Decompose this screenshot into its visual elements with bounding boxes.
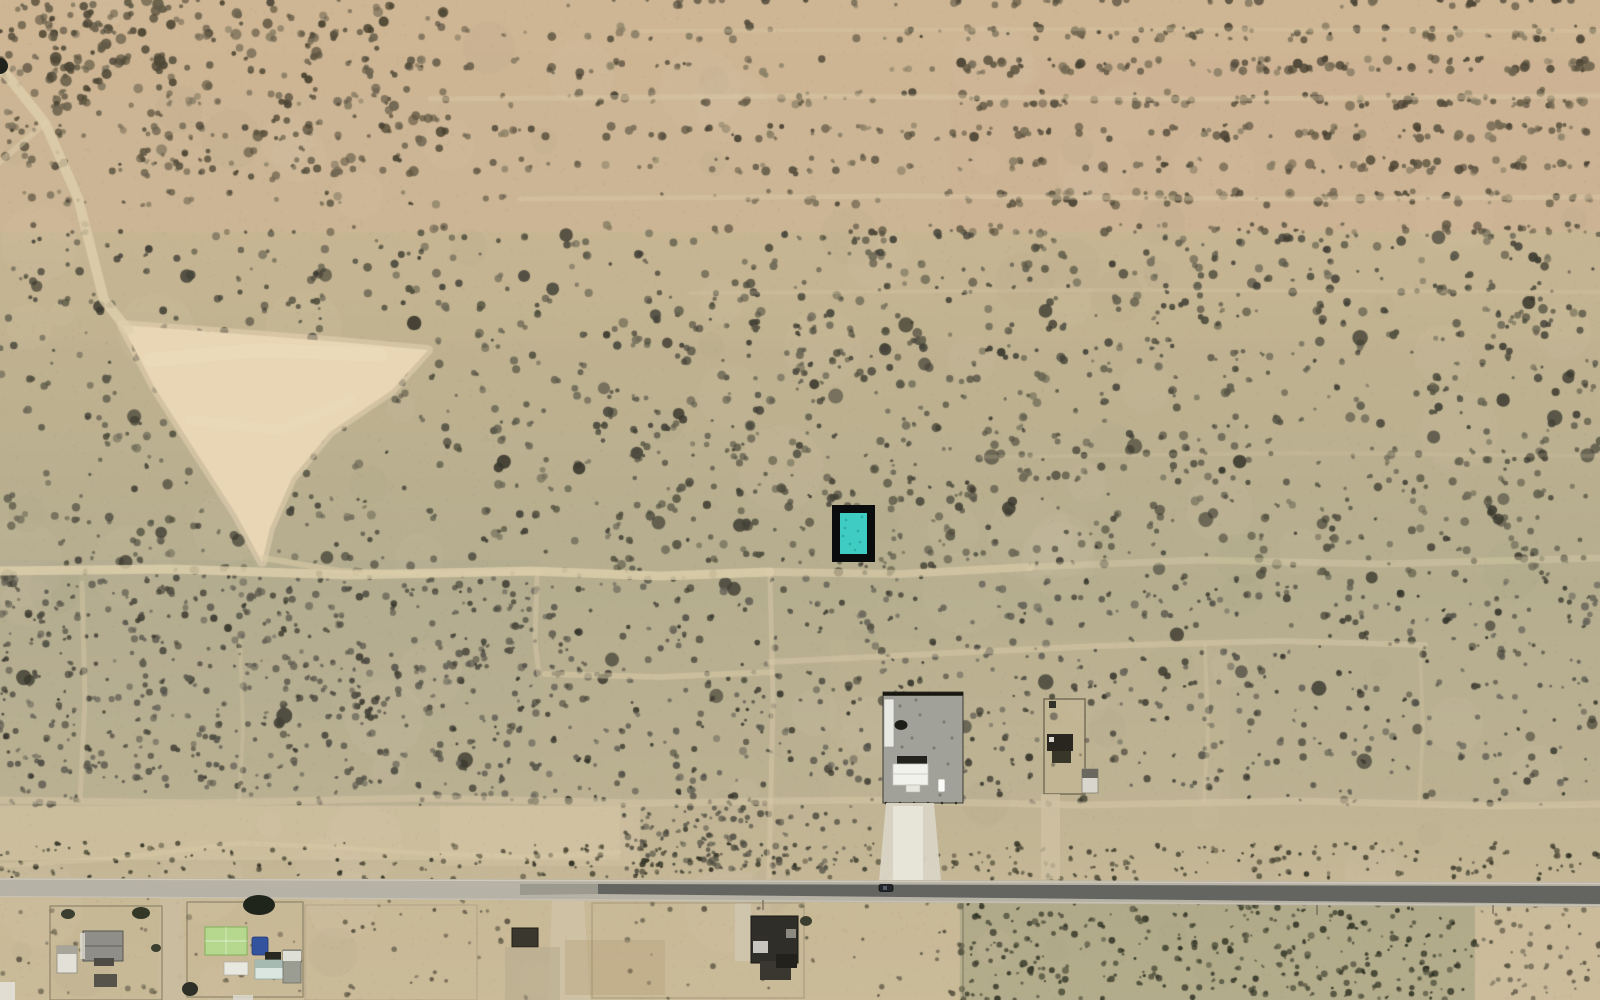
property-3-garage-dark (776, 954, 797, 968)
dirt-area (565, 940, 665, 995)
p3-driveway (735, 903, 751, 961)
lot-a-white-vehicle (938, 779, 945, 792)
property-2-white-shed (224, 962, 248, 975)
property-1-tree-1 (61, 909, 75, 919)
lot-a-house-steps (906, 785, 920, 792)
lot-b-shed-north (1049, 701, 1056, 708)
lot-b-house-main (1047, 734, 1073, 751)
bottom-white-strip (233, 995, 253, 1000)
property-1-house-eave (80, 933, 85, 959)
lot-b-white-shed-roof (1082, 769, 1098, 778)
lot-b-house-wing (1052, 751, 1071, 763)
property-1-porch (94, 958, 114, 966)
property-2-teal-house-roof (255, 960, 284, 968)
lot-b-driveway (1041, 794, 1060, 879)
road-asphalt-transition (520, 884, 598, 895)
property-3-house-light-2 (786, 929, 796, 938)
property-2-tree (243, 895, 275, 915)
property-3-house-light-1 (753, 941, 768, 953)
map-feature-overlay (0, 0, 1600, 1000)
property-2-container-top (283, 951, 301, 961)
property-1-shed-roof (57, 946, 77, 954)
lot-b-house-white-detail (1049, 737, 1054, 742)
property-1-tree-2 (132, 907, 150, 919)
property-3-tree (800, 916, 812, 926)
property-1-tree-3 (151, 944, 161, 952)
lot-a-trailer (884, 699, 894, 747)
selected-parcel-highlight[interactable] (836, 509, 871, 558)
mid-dark-shed (512, 928, 538, 947)
graded-lot-a-pad (883, 692, 963, 803)
car-windshield (883, 886, 887, 890)
mid-lot-fence (305, 905, 477, 1000)
lot-a-driveway-bright (893, 806, 923, 880)
mid-gravel-patch (505, 947, 560, 1000)
lot-a-parked-vehicle-dark (895, 720, 908, 730)
property-2-corner-shrub (182, 982, 198, 996)
satellite-map-view[interactable] (0, 0, 1600, 1000)
top-left-edge-shrub (0, 58, 8, 74)
property-1-outbuilding (94, 974, 117, 987)
bottom-left-white-roof (0, 982, 15, 1000)
